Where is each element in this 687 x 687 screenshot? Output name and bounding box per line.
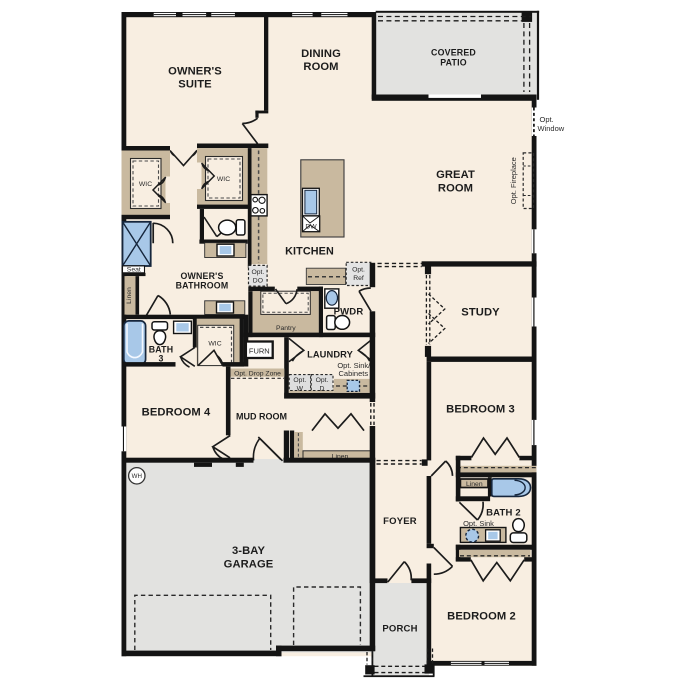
svg-text:MUD ROOM: MUD ROOM	[236, 411, 287, 421]
svg-text:Pantry: Pantry	[276, 325, 296, 332]
svg-text:Opt. Fireplace: Opt. Fireplace	[509, 157, 518, 204]
svg-text:Seat: Seat	[127, 267, 141, 274]
svg-text:Opt.: Opt.	[540, 115, 554, 124]
svg-text:Opt.: Opt.	[251, 269, 264, 276]
svg-text:PWDR: PWDR	[334, 306, 364, 317]
svg-text:BEDROOM 3: BEDROOM 3	[446, 403, 515, 415]
svg-text:BEDROOM 4: BEDROOM 4	[142, 407, 211, 419]
svg-text:GREAT: GREAT	[436, 169, 475, 181]
svg-text:Linen: Linen	[126, 287, 133, 304]
svg-text:3-BAY: 3-BAY	[232, 545, 265, 557]
svg-text:LAUNDRY: LAUNDRY	[307, 350, 354, 360]
svg-text:WIC: WIC	[208, 341, 221, 348]
svg-text:Linen: Linen	[466, 481, 483, 488]
svg-text:STUDY: STUDY	[461, 307, 500, 319]
svg-text:OWNER'S: OWNER'S	[168, 66, 222, 78]
svg-text:Opt. Sink: Opt. Sink	[463, 519, 494, 528]
svg-text:FURN: FURN	[249, 347, 270, 356]
svg-text:WIC: WIC	[217, 176, 230, 183]
svg-text:W: W	[297, 385, 304, 392]
svg-text:GARAGE: GARAGE	[224, 558, 274, 570]
svg-text:WIC: WIC	[139, 181, 152, 188]
svg-text:D: D	[320, 385, 325, 392]
svg-text:DO: DO	[253, 277, 263, 284]
svg-text:WH: WH	[132, 473, 142, 480]
svg-text:BATHROOM: BATHROOM	[176, 281, 229, 291]
svg-text:Opt.: Opt.	[352, 267, 365, 274]
svg-text:SUITE: SUITE	[178, 79, 212, 91]
svg-text:BATH 2: BATH 2	[486, 507, 521, 518]
svg-text:Opt.: Opt.	[293, 377, 306, 384]
svg-text:PATIO: PATIO	[440, 58, 467, 68]
svg-text:Cabinets: Cabinets	[338, 369, 368, 378]
svg-text:KITCHEN: KITCHEN	[285, 245, 334, 257]
svg-text:ROOM: ROOM	[438, 182, 473, 194]
svg-text:ROOM: ROOM	[303, 61, 338, 73]
svg-text:Ref: Ref	[353, 275, 364, 282]
svg-text:PORCH: PORCH	[382, 624, 417, 635]
svg-text:OWNER'S: OWNER'S	[180, 271, 223, 281]
svg-text:COVERED: COVERED	[431, 47, 476, 57]
svg-text:Opt.: Opt.	[316, 377, 329, 384]
svg-text:FOYER: FOYER	[383, 516, 417, 527]
svg-text:BEDROOM 2: BEDROOM 2	[447, 610, 516, 622]
svg-text:DW: DW	[305, 224, 317, 231]
svg-text:DINING: DINING	[301, 48, 341, 60]
svg-text:Window: Window	[538, 124, 565, 133]
svg-text:Opt. Drop Zone: Opt. Drop Zone	[234, 370, 281, 377]
